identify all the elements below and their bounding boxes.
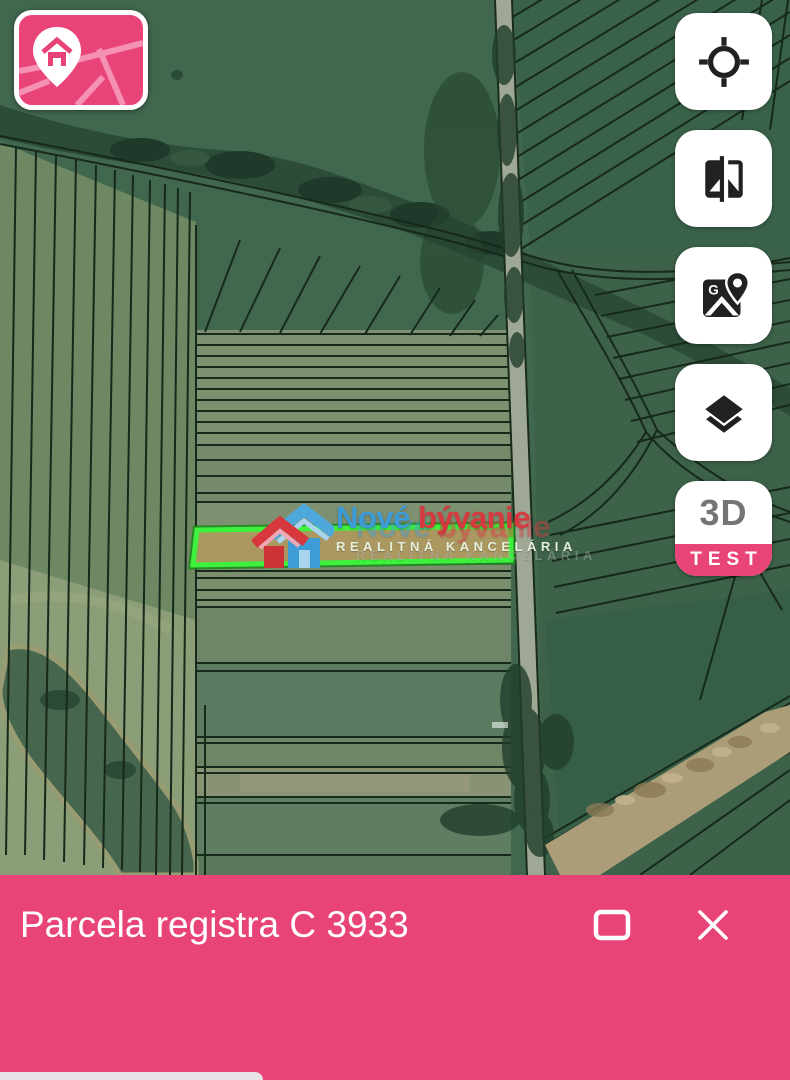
map-controls: G 3D TEST [675, 13, 772, 576]
locate-button[interactable] [675, 13, 772, 110]
map-pin-house-icon [19, 15, 143, 105]
crosshair-gps-icon [698, 36, 750, 88]
close-icon [695, 907, 731, 943]
satellite-map-canvas[interactable] [0, 0, 790, 875]
map-style-toggle-button[interactable] [14, 10, 148, 110]
view-3d-label: 3D [675, 481, 772, 544]
parcel-panel-title: Parcela registra C 3933 [20, 904, 593, 946]
compare-icon [699, 154, 749, 204]
app-screen: Nové bývanie REALITNÁ KANCELÁRIA Nové bý… [0, 0, 790, 1080]
compare-button[interactable] [675, 130, 772, 227]
google-maps-button[interactable]: G [675, 247, 772, 344]
close-button[interactable] [695, 907, 731, 943]
parcel-panel-header: Parcela registra C 3933 [0, 875, 790, 975]
gesture-bar [0, 1072, 263, 1080]
test-badge: TEST [675, 544, 772, 576]
parcel-info-panel: Parcela registra C 3933 [0, 875, 790, 1080]
google-maps-icon: G [697, 269, 751, 323]
maximize-button[interactable] [593, 909, 631, 941]
view-3d-button[interactable]: 3D TEST [675, 481, 772, 576]
layers-icon [699, 388, 749, 438]
svg-text:G: G [708, 282, 719, 297]
layers-button[interactable] [675, 364, 772, 461]
selected-parcel-highlight[interactable] [193, 526, 511, 565]
maximize-icon [593, 909, 631, 941]
